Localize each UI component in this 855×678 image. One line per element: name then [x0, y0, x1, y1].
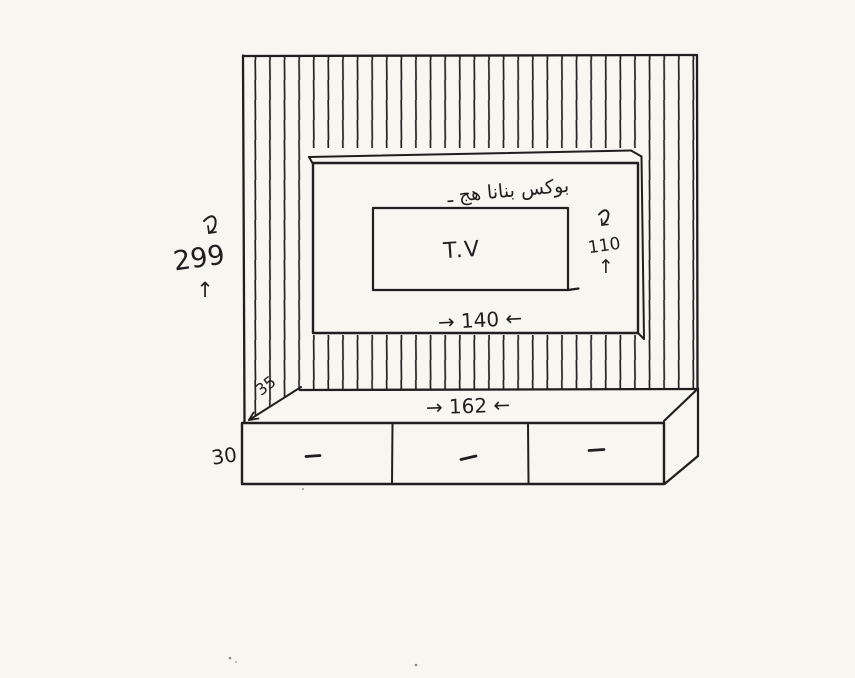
cabinet-drawer-divider-right — [528, 424, 529, 484]
drawer-handle-right — [589, 450, 604, 451]
tv-box-height-up-arrow-icon: ↑ — [598, 256, 614, 278]
wall-panel-left-edge — [243, 56, 245, 423]
tv-box: بوكس بنانا هج ـ T.V → 140 ← 110 ↑ — [306, 148, 648, 339]
tv-screen-label: T.V — [442, 237, 482, 265]
wall-panel-top-edge — [244, 55, 698, 56]
cabinet-bottom-right-slant — [665, 456, 699, 484]
scan-speck — [415, 664, 418, 667]
down-hook-arrow-icon — [204, 216, 216, 233]
scan-speck — [235, 661, 237, 663]
drawer-handle-left — [306, 456, 320, 457]
scan-specks — [229, 488, 418, 666]
wall-panel-right-edge — [697, 55, 698, 389]
sketch-canvas: 299 ↑ بوكس بنانا هج ـ T.V → 140 — [0, 0, 855, 678]
tv-screen-stroke-overshoot — [568, 289, 579, 291]
drawer-handle-middle — [461, 456, 476, 460]
scan-speck — [229, 657, 232, 660]
cabinet-top-right-slant — [664, 389, 698, 422]
wall-panel-bottom-edge — [300, 389, 698, 390]
wall-height-dimension: 299 ↑ — [171, 216, 226, 302]
wall-height-label: 299 — [171, 240, 226, 278]
cabinet-front-face — [242, 423, 664, 484]
wall-height-up-arrow-icon: ↑ — [196, 278, 214, 302]
cabinet-width-dimension: → 162 ← — [425, 393, 510, 420]
tv-width-dimension: → 140 ← — [437, 306, 523, 334]
cabinet-height-label: 30 — [210, 442, 239, 469]
cabinet-drawer-divider-left — [392, 424, 393, 483]
sketch-svg: 299 ↑ بوكس بنانا هج ـ T.V → 140 — [0, 0, 855, 678]
scan-speck — [302, 488, 304, 490]
